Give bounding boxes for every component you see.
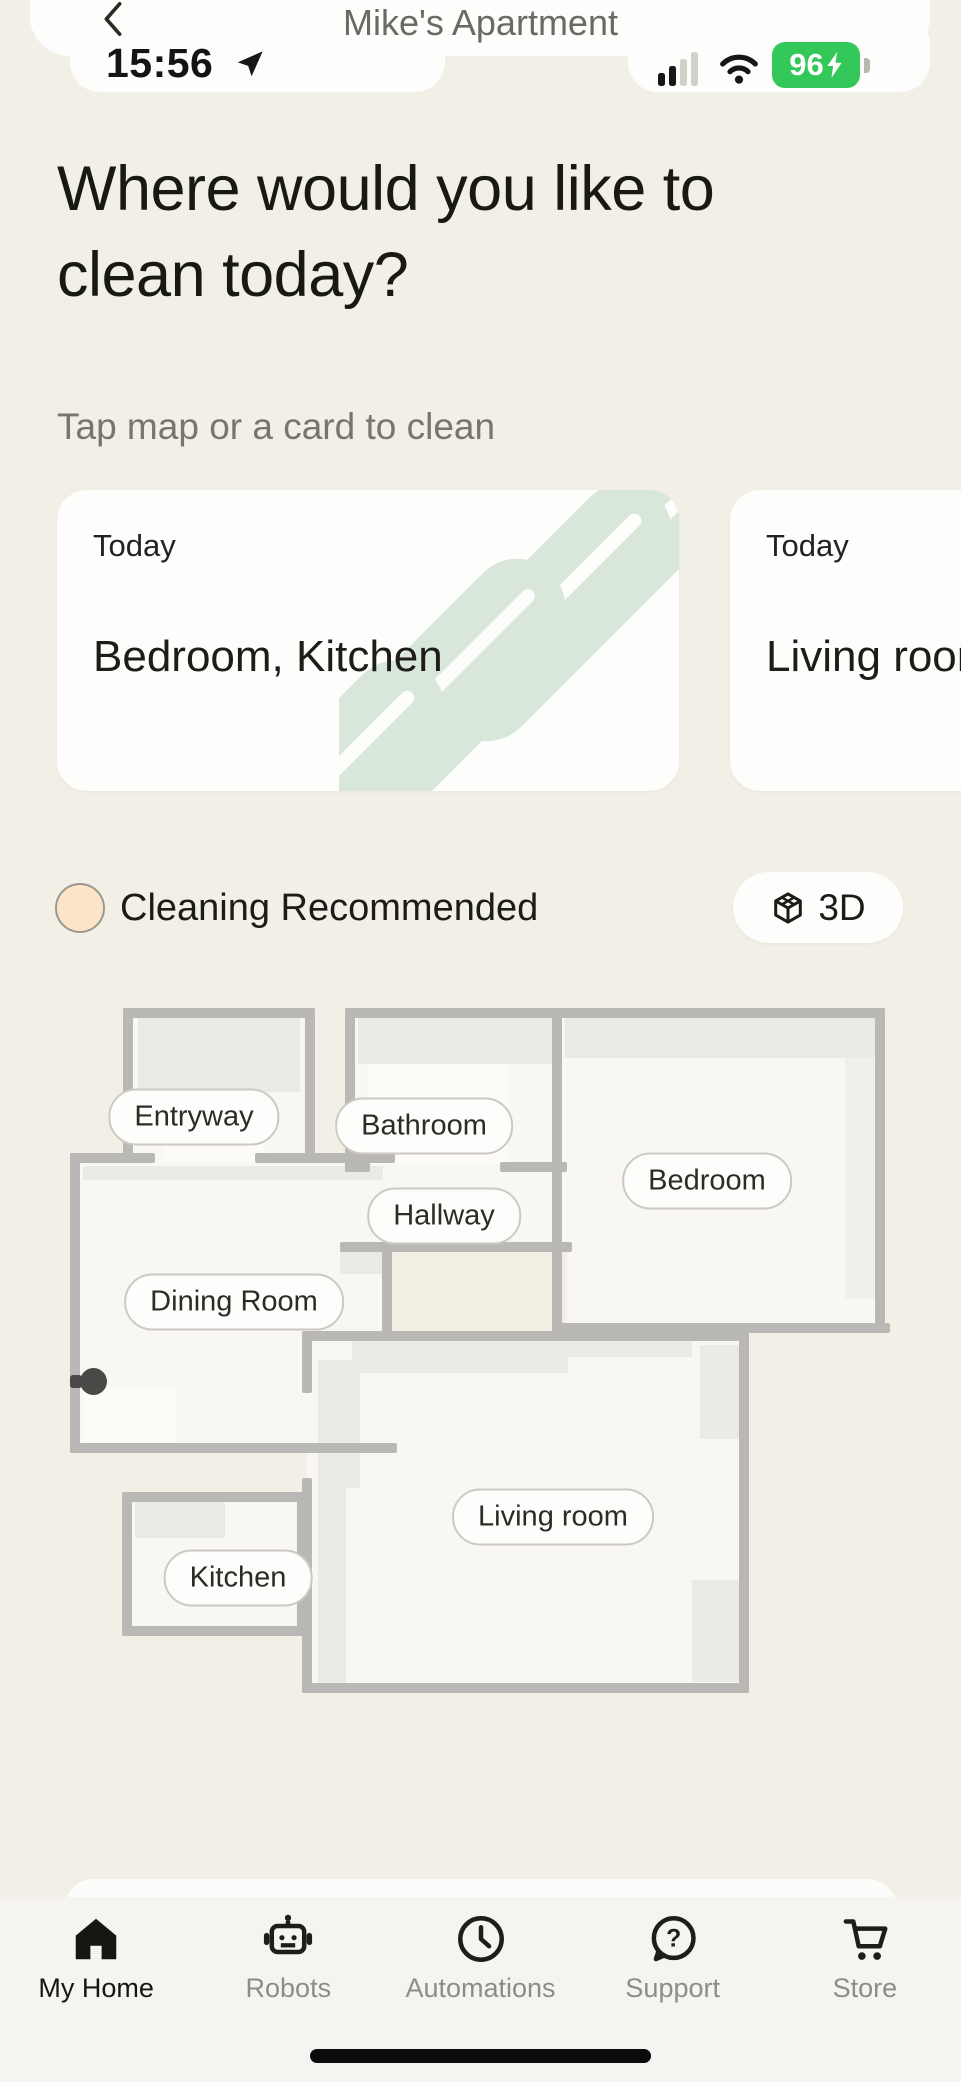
battery-percent: 96: [789, 47, 823, 83]
tab-my-home[interactable]: My Home: [0, 1897, 192, 2082]
robot-icon: [260, 1911, 316, 1967]
app-screen: Mike's Apartment 15:56 96 Where would yo…: [0, 0, 961, 2082]
cart-icon: [837, 1911, 893, 1967]
home-indicator[interactable]: [310, 2049, 651, 2063]
card-eyebrow: Today: [766, 528, 849, 564]
card-title: Bedroom, Kitchen: [93, 632, 443, 682]
battery-indicator: 96: [772, 42, 860, 88]
svg-text:?: ?: [666, 1926, 681, 1953]
tab-label: Robots: [246, 1973, 332, 2004]
battery-tip: [864, 58, 870, 73]
room-label-kitchen[interactable]: Kitchen: [164, 1550, 313, 1607]
cleaning-recommended-swatch: [55, 883, 105, 933]
cleaning-card-bedroom-kitchen[interactable]: Today Bedroom, Kitchen: [57, 490, 679, 791]
room-label-bedroom[interactable]: Bedroom: [622, 1153, 792, 1210]
status-time: 15:56: [106, 40, 213, 87]
room-label-bathroom[interactable]: Bathroom: [335, 1098, 513, 1155]
room-label-dining-room[interactable]: Dining Room: [124, 1274, 344, 1331]
hero-title: Where would you like to clean today?: [57, 146, 714, 318]
location-arrow-icon: [234, 48, 266, 80]
hero-title-line2: clean today?: [57, 232, 714, 318]
page-title: Mike's Apartment: [0, 2, 961, 44]
battery-charging-icon: [826, 52, 843, 78]
help-chat-icon: ?: [645, 1911, 701, 1967]
room-area-closet: [382, 1242, 567, 1341]
hero-title-line1: Where would you like to: [57, 146, 714, 232]
robot-position-dot: [80, 1368, 107, 1395]
wifi-icon: [714, 48, 764, 86]
home-icon: [68, 1911, 124, 1967]
view-3d-label: 3D: [818, 887, 865, 929]
clock-icon: [453, 1911, 509, 1967]
tab-store[interactable]: Store: [769, 1897, 961, 2082]
cellular-signal-icon: [658, 48, 702, 88]
tab-label: Store: [833, 1973, 898, 2004]
tab-label: Support: [625, 1973, 720, 2004]
room-label-living-room[interactable]: Living room: [452, 1489, 654, 1546]
tab-label: Automations: [405, 1973, 555, 2004]
card-title: Living room: [766, 632, 961, 682]
room-label-hallway[interactable]: Hallway: [367, 1188, 521, 1245]
cube-3d-icon: [770, 890, 806, 926]
card-eyebrow: Today: [93, 528, 176, 564]
room-label-entryway[interactable]: Entryway: [108, 1089, 279, 1146]
view-3d-button[interactable]: 3D: [733, 872, 903, 943]
cleaning-recommended-label: Cleaning Recommended: [120, 887, 538, 930]
hero-subtitle: Tap map or a card to clean: [57, 406, 495, 448]
cleaning-card-living-room[interactable]: Today Living room: [730, 490, 961, 791]
tab-label: My Home: [38, 1973, 154, 2004]
